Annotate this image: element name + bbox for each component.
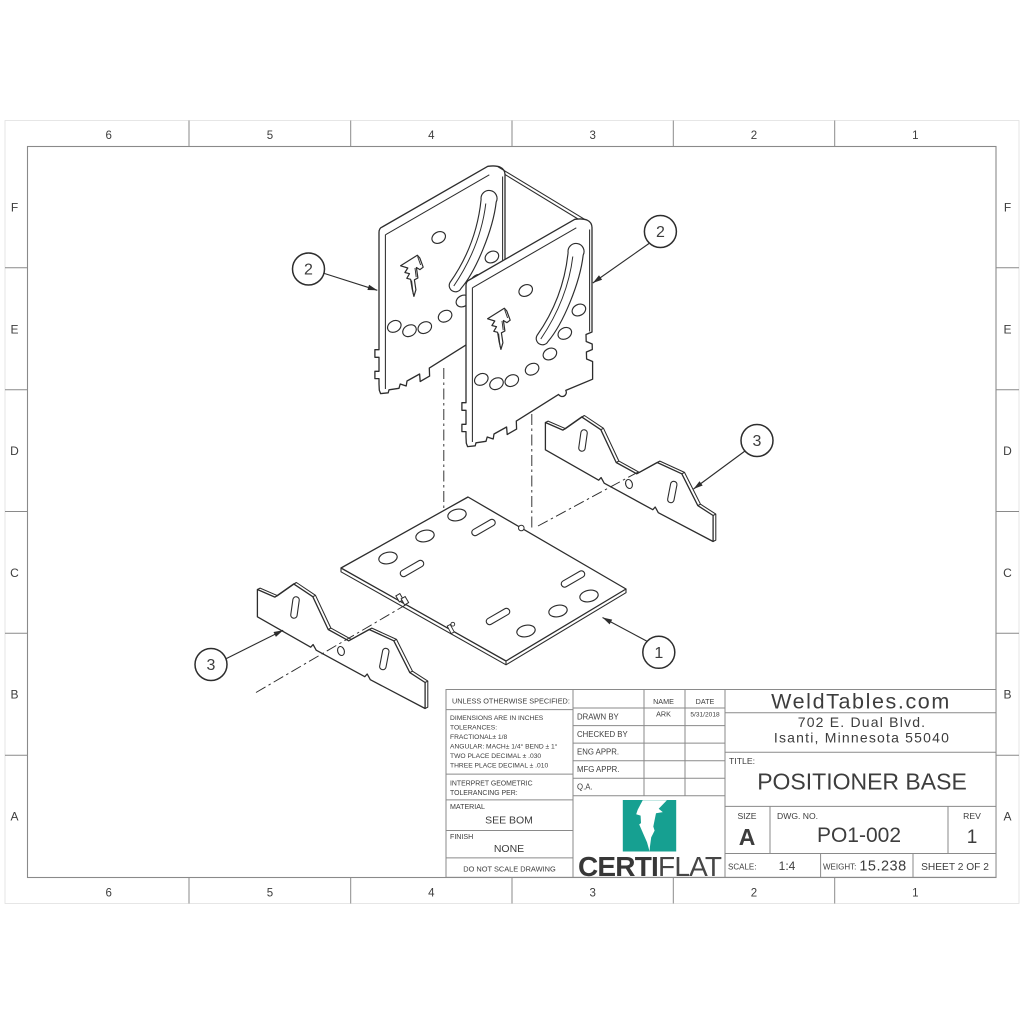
svg-text:NAME: NAME [653,697,674,706]
svg-text:SHEET 2 OF 2: SHEET 2 OF 2 [921,862,989,873]
svg-text:15.238: 15.238 [859,859,906,875]
svg-text:NONE: NONE [494,843,524,855]
svg-text:DWG. NO.: DWG. NO. [777,811,818,821]
svg-text:CHECKED BY: CHECKED BY [577,730,628,739]
svg-text:MFG APPR.: MFG APPR. [577,765,619,774]
svg-text:ENG APPR.: ENG APPR. [577,747,619,756]
svg-text:B: B [10,688,18,702]
svg-text:C: C [10,566,19,580]
svg-text:1:4: 1:4 [779,859,796,873]
svg-text:DATE: DATE [696,697,715,706]
svg-text:4: 4 [428,130,435,142]
svg-text:DO NOT SCALE DRAWING: DO NOT SCALE DRAWING [463,865,556,874]
svg-text:TITLE:: TITLE: [729,756,755,766]
svg-text:E: E [1003,322,1011,336]
svg-text:REV: REV [963,811,981,821]
svg-text:D: D [1003,444,1012,458]
svg-text:SCALE:: SCALE: [728,863,756,872]
svg-text:F: F [1004,201,1011,215]
svg-text:3: 3 [589,888,595,900]
svg-text:F: F [11,201,18,215]
svg-text:WEIGHT:: WEIGHT: [823,863,856,872]
svg-text:702 E. Dual Blvd.: 702 E. Dual Blvd. [798,714,927,730]
svg-text:1: 1 [654,645,663,662]
svg-text:5/31/2018: 5/31/2018 [690,712,720,719]
svg-text:1: 1 [912,888,918,900]
svg-text:CERTIFLAT: CERTIFLAT [578,851,722,882]
svg-text:2: 2 [751,130,757,142]
svg-text:FINISH: FINISH [450,833,473,841]
svg-text:1: 1 [967,827,978,848]
svg-text:2: 2 [656,224,665,241]
svg-text:Isanti, Minnesota 55040: Isanti, Minnesota 55040 [774,730,950,746]
svg-text:5: 5 [267,130,273,142]
svg-text:TOLERANCES:: TOLERANCES: [450,725,497,732]
svg-text:POSITIONER BASE: POSITIONER BASE [757,769,967,795]
svg-text:SIZE: SIZE [737,811,756,821]
svg-text:C: C [1003,566,1012,580]
svg-text:2: 2 [304,262,313,279]
svg-text:B: B [1003,688,1011,702]
svg-text:ARK: ARK [656,710,671,719]
svg-text:3: 3 [207,657,216,674]
svg-text:SEE BOM: SEE BOM [485,815,533,827]
svg-text:DRAWN BY: DRAWN BY [577,712,620,721]
svg-text:Q.A.: Q.A. [577,782,593,791]
svg-text:WeldTables.com: WeldTables.com [771,690,951,714]
svg-text:6: 6 [105,130,111,142]
svg-text:D: D [10,444,19,458]
svg-text:FRACTIONAL± 1/8: FRACTIONAL± 1/8 [450,734,507,741]
svg-text:E: E [10,322,18,336]
svg-text:6: 6 [105,888,111,900]
svg-text:3: 3 [589,130,595,142]
svg-text:4: 4 [428,888,435,900]
svg-text:TOLERANCING PER:: TOLERANCING PER: [450,790,518,797]
svg-text:INTERPRET GEOMETRIC: INTERPRET GEOMETRIC [450,781,533,788]
svg-text:PO1-002: PO1-002 [817,824,901,847]
svg-text:3: 3 [753,433,762,450]
svg-text:UNLESS OTHERWISE SPECIFIED:: UNLESS OTHERWISE SPECIFIED: [452,697,570,706]
svg-text:TWO PLACE DECIMAL ± .030: TWO PLACE DECIMAL ± .030 [450,753,541,760]
svg-text:A: A [10,810,18,824]
svg-text:MATERIAL: MATERIAL [450,803,485,811]
svg-text:DIMENSIONS ARE IN INCHES: DIMENSIONS ARE IN INCHES [450,715,544,722]
svg-text:A: A [739,824,756,850]
svg-text:THREE PLACE DECIMAL ± .010: THREE PLACE DECIMAL ± .010 [450,763,548,770]
svg-text:A: A [1003,810,1011,824]
svg-text:5: 5 [267,888,273,900]
svg-text:ANGULAR: MACH± 1/4° BEND ± 1°: ANGULAR: MACH± 1/4° BEND ± 1° [450,743,558,751]
svg-text:1: 1 [912,130,918,142]
svg-text:2: 2 [751,888,757,900]
